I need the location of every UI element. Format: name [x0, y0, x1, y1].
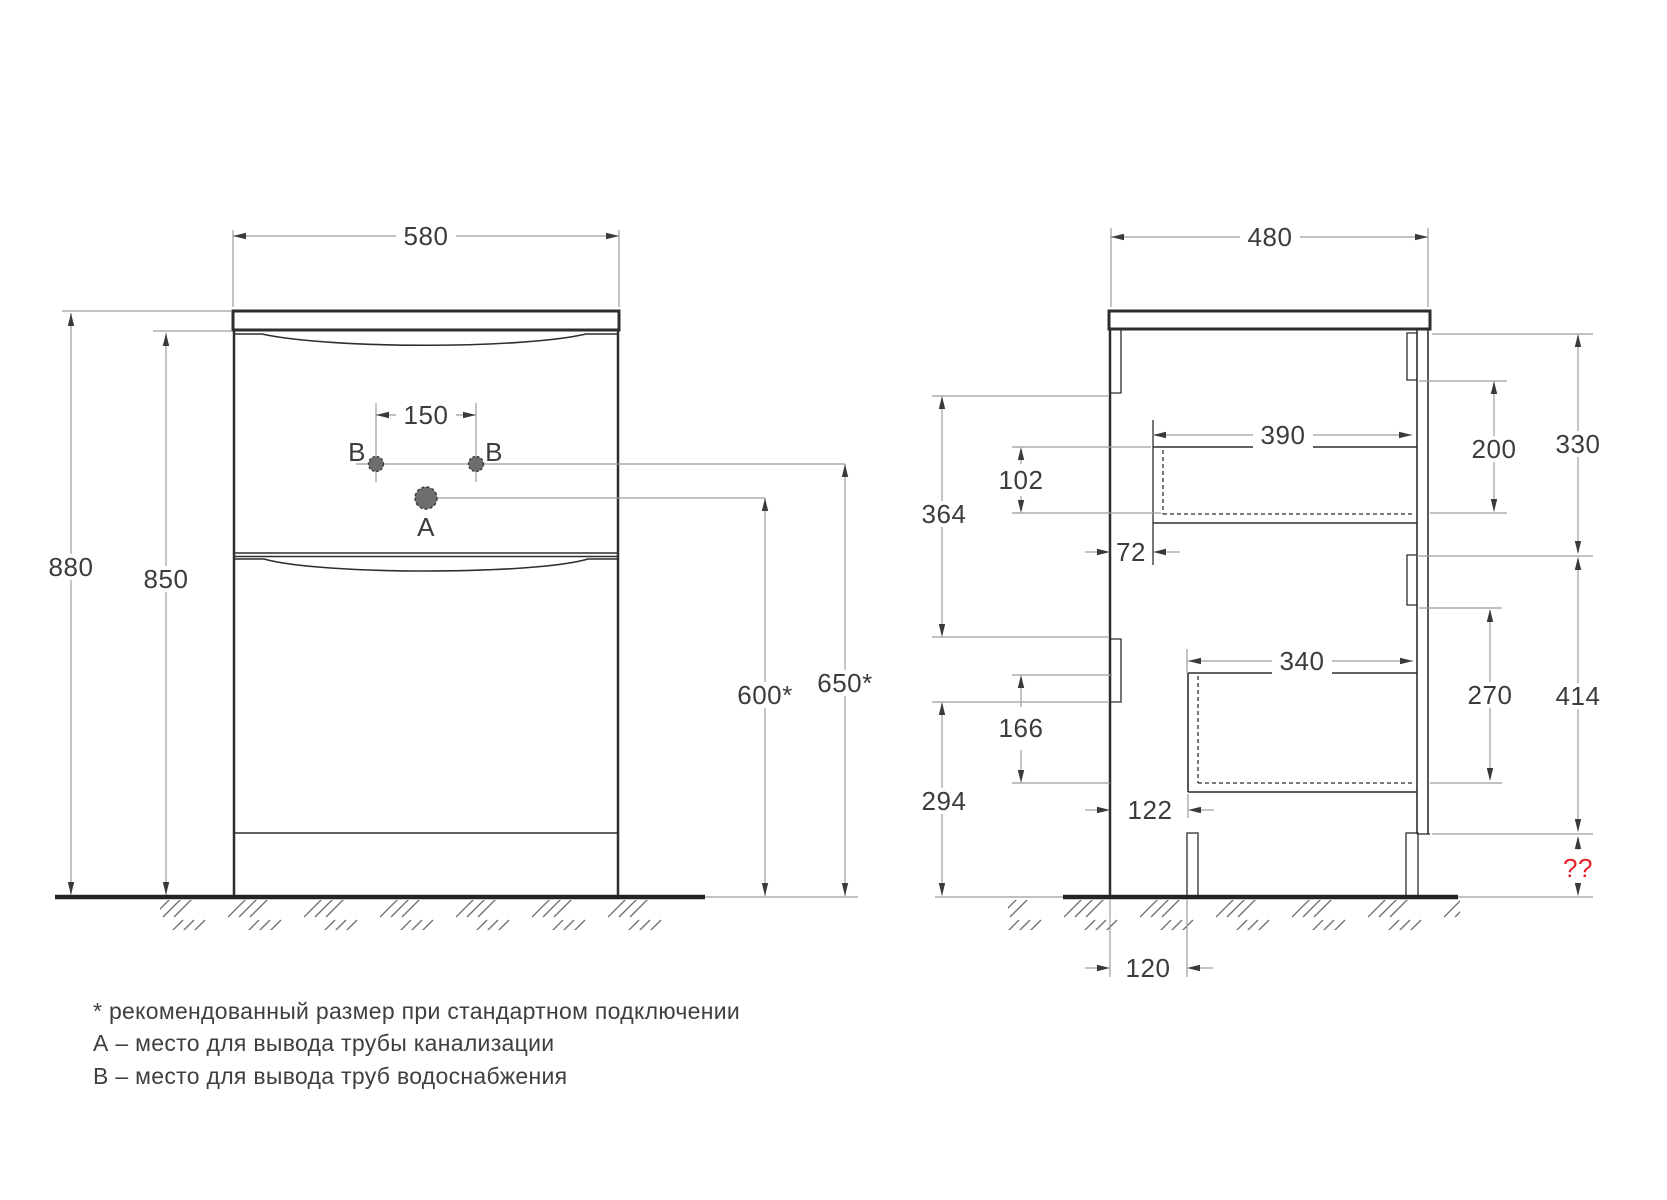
technical-drawing-page: 580 880 850 150 650* 600* В В А 480 390 … [0, 0, 1667, 1200]
dimension-labels: 580 880 850 150 650* 600* В В А 480 390 … [49, 221, 1601, 983]
side-countertop [1109, 311, 1430, 329]
front-top-drawer-handle-curve [234, 334, 618, 345]
footnote-a: А – место для вывода трубы канализации [93, 1030, 554, 1056]
marker-label-a: А [417, 512, 435, 542]
dim-water-height: 650* [817, 668, 873, 698]
dim-wall-to-top-drawer: 364 [922, 499, 967, 529]
dim-top-front-offset: 72 [1116, 537, 1146, 567]
dim-front-height-total: 880 [49, 552, 94, 582]
side-mid-front-tab [1110, 639, 1121, 702]
front-view [55, 311, 705, 930]
drain-point [415, 487, 437, 509]
footnote-asterisk: * рекомендованный размер при стандартном… [93, 998, 740, 1024]
dim-bottom-drawer-depth: 340 [1280, 646, 1325, 676]
water-supply-point-left [369, 457, 384, 472]
dim-bottom-drawer-back-height: 270 [1468, 680, 1513, 710]
side-floor-hatching [1008, 900, 1460, 930]
dim-bottom-section-height: 414 [1556, 681, 1601, 711]
dim-unknown-height: ?? [1563, 853, 1593, 883]
side-back-leg [1406, 833, 1418, 897]
dim-side-depth: 480 [1248, 222, 1293, 252]
dim-drain-height: 600* [737, 680, 793, 710]
side-view [1008, 311, 1460, 930]
front-countertop [233, 311, 619, 330]
water-supply-point-right [469, 457, 484, 472]
marker-label-b-left: В [348, 437, 366, 467]
side-top-front-tab [1110, 330, 1121, 393]
vanity-dimension-drawing: 580 880 850 150 650* 600* В В А 480 390 … [0, 0, 1667, 1200]
side-front-leg [1187, 833, 1198, 897]
footnote-b: В – место для вывода труб водоснабжения [93, 1063, 567, 1089]
dim-bottom-drawer-inner-height: 166 [999, 713, 1044, 743]
dim-front-width: 580 [404, 221, 449, 251]
dim-wall-to-bottom-drawer: 294 [922, 786, 967, 816]
dim-bottom-front-offset: 122 [1128, 795, 1173, 825]
front-floor-hatching [160, 900, 665, 930]
dim-top-drawer-back-height: 200 [1472, 434, 1517, 464]
side-mid-back-tab [1407, 555, 1417, 605]
extension-lines [62, 228, 1593, 977]
dim-holes-spacing: 150 [404, 400, 449, 430]
dimension-lines [71, 236, 1578, 968]
front-bottom-drawer-handle-curve [234, 559, 618, 571]
side-top-back-tab [1407, 333, 1417, 380]
marker-label-b-right: В [485, 437, 503, 467]
dim-top-drawer-depth: 390 [1261, 420, 1306, 450]
footnotes: * рекомендованный размер при стандартном… [93, 998, 740, 1089]
dim-top-section-height: 330 [1556, 429, 1601, 459]
dim-front-height-body: 850 [144, 564, 189, 594]
dimension-arrows [68, 233, 1581, 971]
dim-leg-inset: 120 [1126, 953, 1171, 983]
dim-top-drawer-inner-height: 102 [999, 465, 1044, 495]
